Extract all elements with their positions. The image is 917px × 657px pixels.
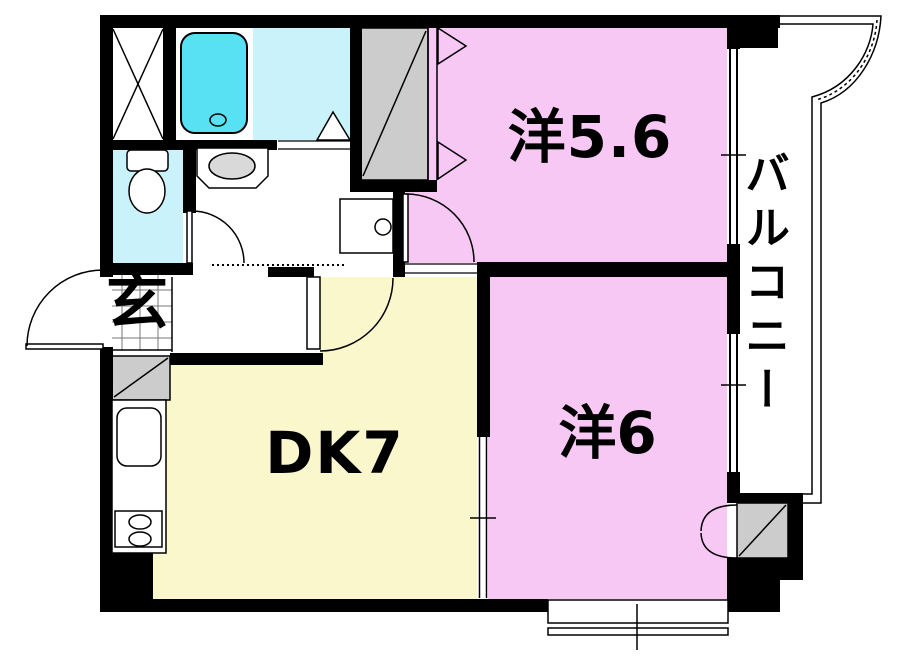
balcony-curve-dotted <box>816 20 877 100</box>
room-label-western-6: 洋6 <box>490 404 725 462</box>
stove-burner-icon <box>129 515 151 529</box>
wall-bath-divider <box>163 15 176 140</box>
bathtub-drain-icon <box>210 114 226 126</box>
western-5-6-door-leaf <box>403 194 408 262</box>
balcony-outer-line <box>778 16 881 503</box>
wall-toilet-right <box>183 140 196 213</box>
toilet-bowl-icon <box>129 169 165 213</box>
wall-bottom-left-block <box>100 553 153 612</box>
bathroom-threshold <box>278 141 350 149</box>
floorplan: 洋5.6 洋6 DK7 玄 バルコニー <box>0 0 917 657</box>
wall-between-western-rooms <box>477 262 740 277</box>
balcony-inner-line <box>778 24 873 494</box>
wall-top <box>100 15 780 28</box>
wall-bottom <box>100 599 548 612</box>
wall-bath-right <box>350 15 362 192</box>
washing-machine-pan-icon <box>340 199 393 253</box>
entrance-door-leaf <box>26 344 103 349</box>
toilet-door-leaf <box>187 211 192 263</box>
toilet-door-arc <box>192 211 244 263</box>
wall-top-right-corner <box>727 15 778 48</box>
room-label-western-5-6: 洋5.6 <box>455 108 725 166</box>
window-bay-south-outer <box>548 628 728 635</box>
wall-dk-western6 <box>477 277 490 437</box>
stove-burner-icon <box>129 532 151 546</box>
western-5-6-floor-lower <box>404 190 727 263</box>
wall-hall-bottom <box>170 353 323 365</box>
toilet-tank-icon <box>127 150 168 171</box>
window-bay-south <box>548 600 728 623</box>
kitchen-sink-icon <box>117 408 161 466</box>
pipe-space <box>113 29 163 139</box>
door-threshold <box>404 264 477 273</box>
entrance-door-arc <box>27 270 103 346</box>
wall-bottom-right-block <box>727 558 780 612</box>
balcony-railing <box>778 16 881 503</box>
room-label-entrance: 玄 <box>102 271 172 333</box>
dk-floor-upper <box>320 277 477 365</box>
room-label-balcony: バルコニー <box>741 150 786 480</box>
washbasin-bowl-icon <box>209 153 255 179</box>
dk-door-leaf <box>307 277 320 349</box>
wall-corridor-fragment <box>268 267 314 277</box>
room-label-dining-kitchen: DK7 <box>215 424 455 482</box>
